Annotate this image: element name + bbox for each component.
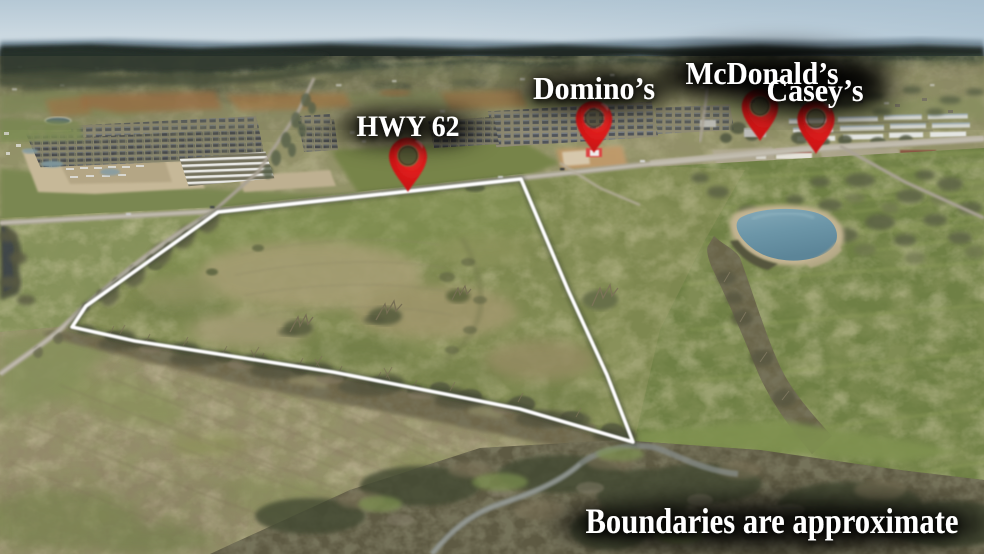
svg-text:Casey’s: Casey’s [767,72,864,108]
svg-text:HWY 62: HWY 62 [357,110,460,143]
svg-text:Domino’s: Domino’s [533,70,655,106]
svg-text:Boundaries are approximate: Boundaries are approximate [586,501,959,541]
